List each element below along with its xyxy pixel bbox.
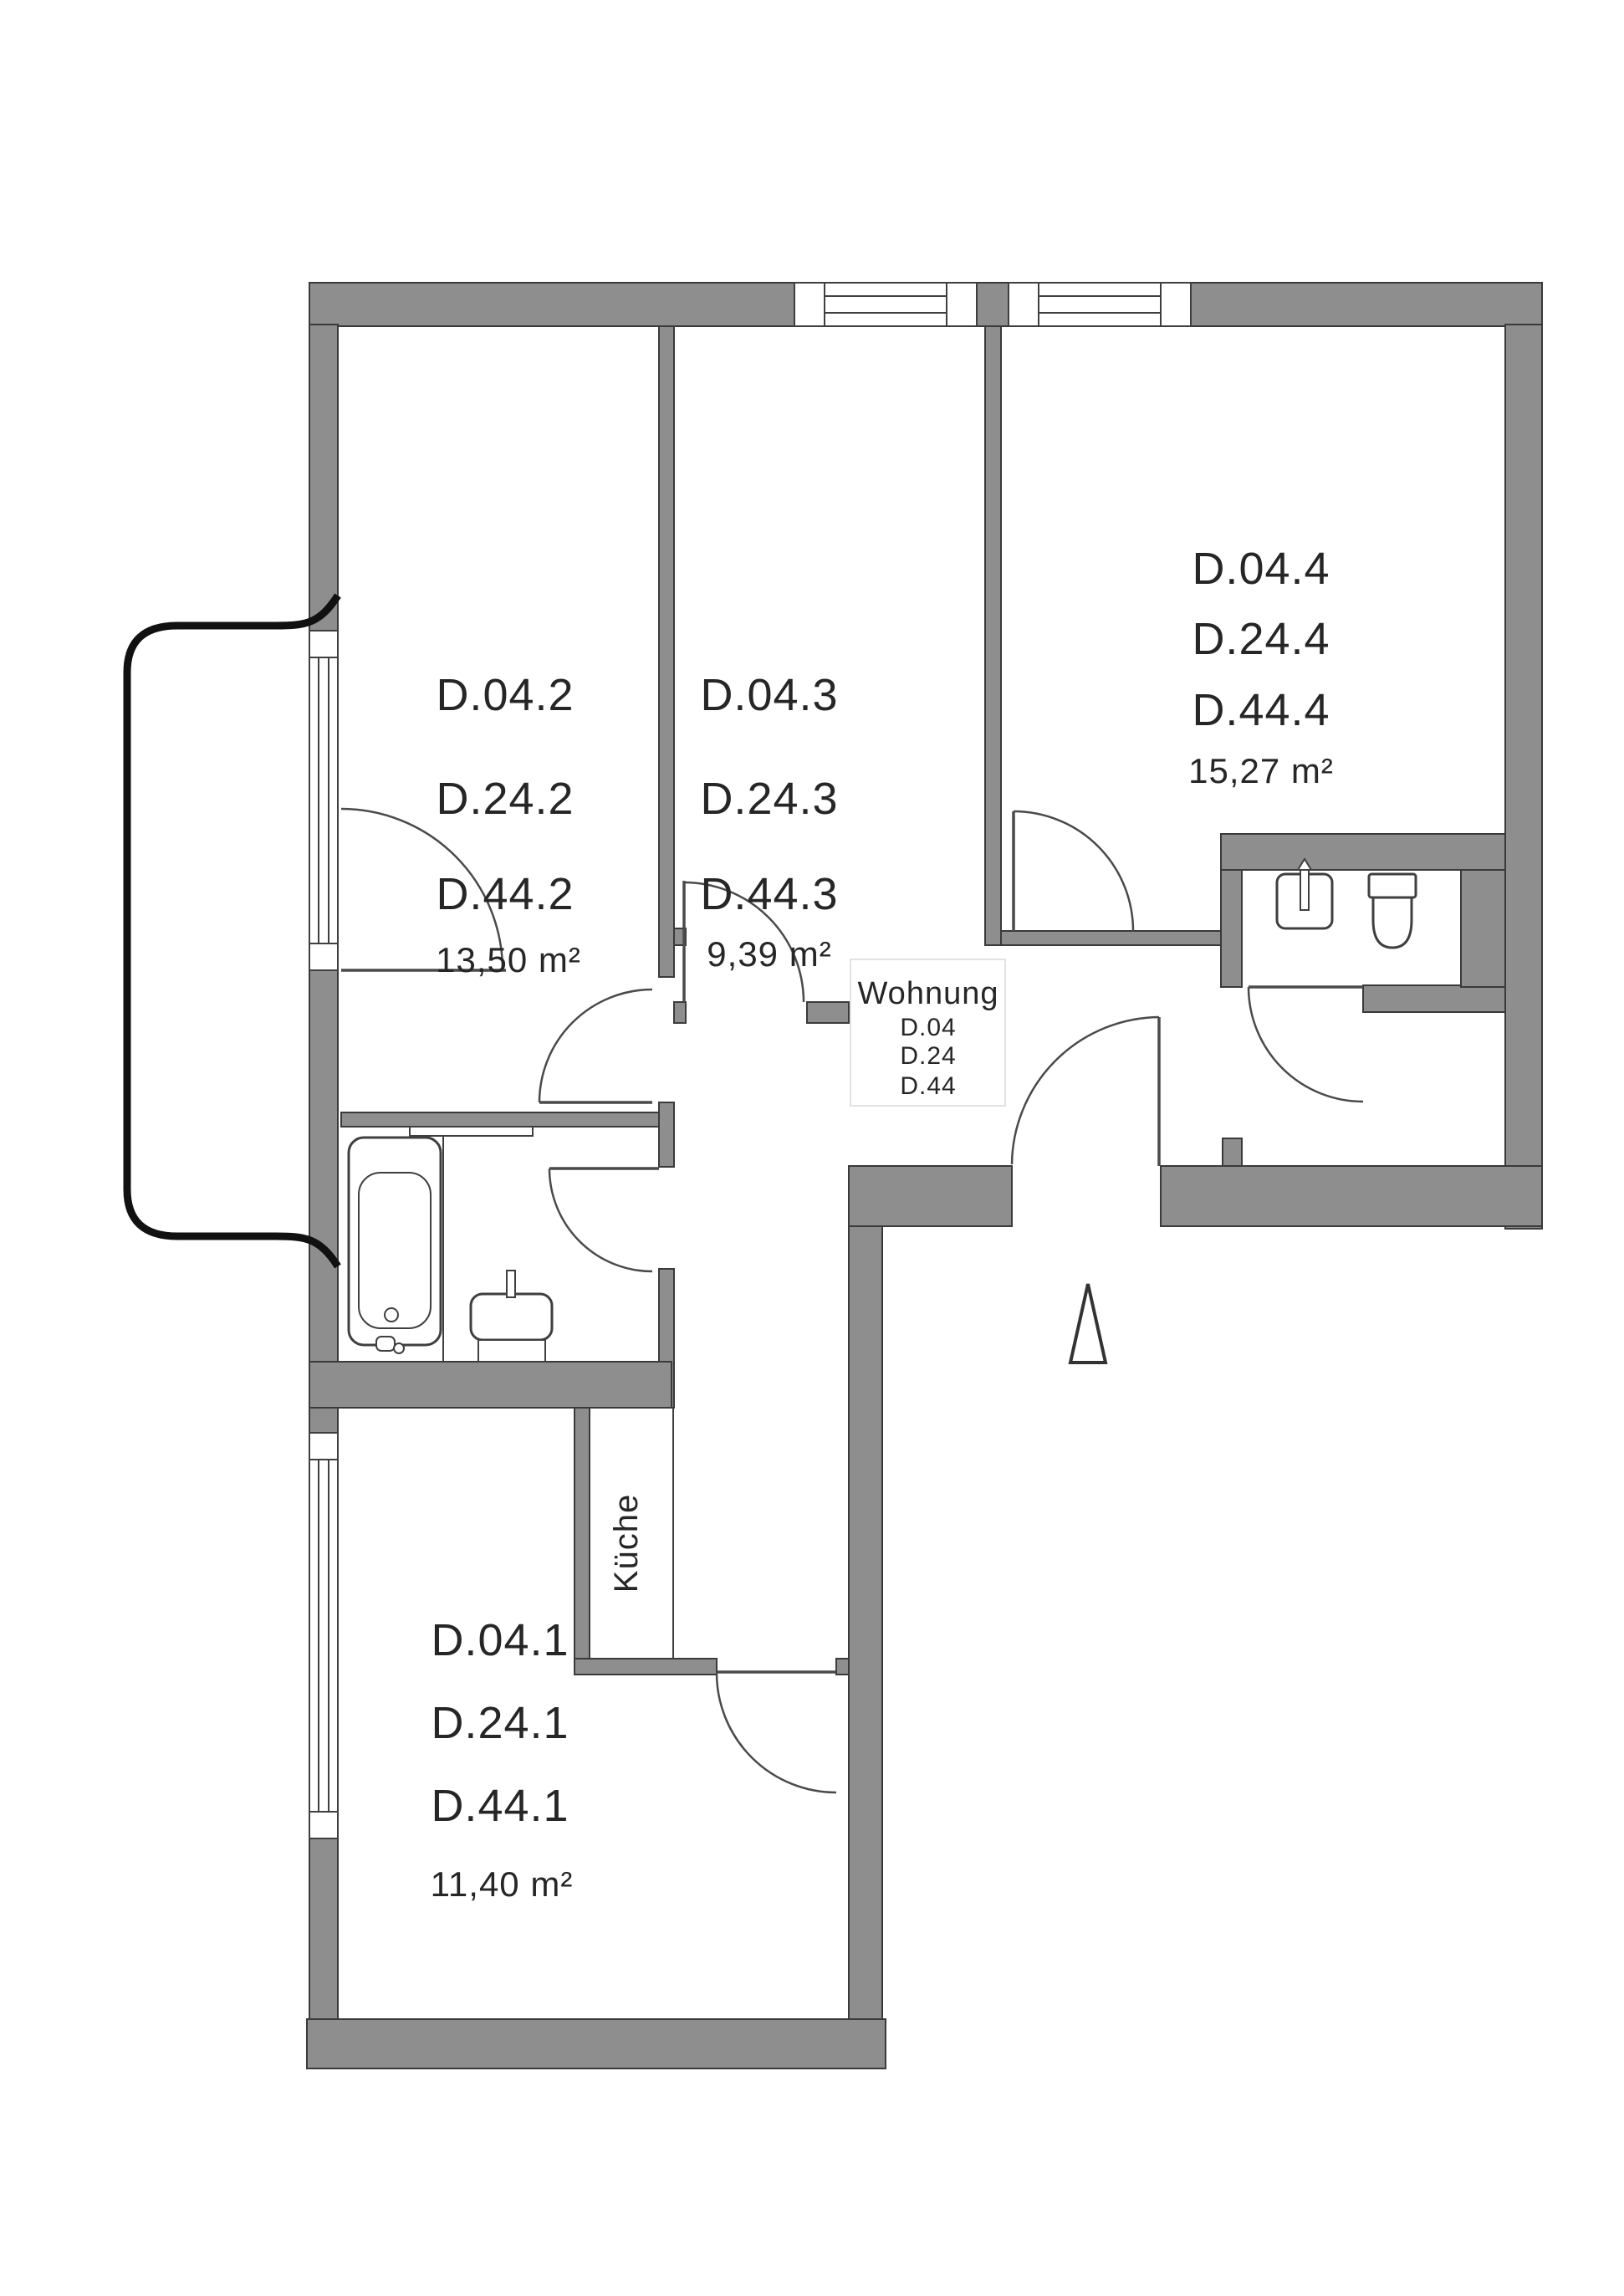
room4-label-1: D.04.4 bbox=[1192, 544, 1330, 594]
entrance-arrow-icon bbox=[1070, 1284, 1106, 1363]
wall-room1-door-stub bbox=[836, 1659, 849, 1675]
window-top-room3 bbox=[794, 283, 977, 326]
wall-entrance-right bbox=[1161, 1166, 1542, 1226]
room1-area: 11,40 m² bbox=[431, 1864, 574, 1904]
windows bbox=[309, 283, 1191, 1838]
wall-wc-east bbox=[1461, 870, 1505, 987]
window-room1 bbox=[309, 1433, 338, 1838]
room4-label-2: D.24.4 bbox=[1192, 614, 1330, 664]
bathroom-shelf bbox=[410, 1127, 533, 1136]
room3-area: 9,39 m² bbox=[707, 934, 831, 974]
wall-bathroom-bottom bbox=[309, 1362, 672, 1408]
room4-area: 15,27 m² bbox=[1188, 751, 1334, 790]
unit-box-line-1: D.04 bbox=[900, 1014, 956, 1041]
toilet-icon bbox=[1369, 874, 1416, 948]
door-room4 bbox=[1014, 811, 1133, 931]
door-entrance bbox=[1012, 1017, 1159, 1166]
door-room1 bbox=[717, 1672, 836, 1792]
wall-top-window-pier bbox=[977, 283, 1009, 326]
room1-label-1: D.04.1 bbox=[431, 1615, 569, 1665]
balcony-railing bbox=[127, 596, 338, 1266]
wall-room3-bottom-left-stub bbox=[674, 1002, 686, 1023]
wall-partition-room3-room4 bbox=[985, 326, 1001, 945]
floorplan-page: D.04.2 D.24.2 D.44.2 13,50 m² D.04.3 D.2… bbox=[0, 0, 1624, 2296]
room3-label-3: D.44.3 bbox=[700, 869, 838, 919]
wall-bathroom-top bbox=[341, 1112, 661, 1127]
wall-wc-left bbox=[1221, 870, 1242, 987]
room2-label-2: D.24.2 bbox=[436, 774, 574, 824]
wall-room3-bottom-right-stub bbox=[807, 1002, 849, 1023]
room2-label-1: D.04.2 bbox=[436, 670, 574, 720]
kitchen-label: Küche bbox=[608, 1494, 645, 1593]
unit-box-line-2: D.24 bbox=[900, 1042, 956, 1070]
wall-bottom bbox=[307, 2019, 886, 2068]
door-bathroom bbox=[549, 1168, 659, 1271]
wall-kitchen-left bbox=[575, 1408, 590, 1675]
wall-kitchen-bottom bbox=[575, 1659, 717, 1675]
wall-top-right bbox=[1191, 283, 1542, 326]
room1-label-2: D.24.1 bbox=[431, 1698, 569, 1748]
room3-label-2: D.24.3 bbox=[700, 774, 838, 824]
bathtub-icon bbox=[349, 1138, 441, 1353]
window-balcony-room2 bbox=[309, 631, 338, 970]
wall-wc-bottom bbox=[1363, 985, 1505, 1012]
wall-corridor-east bbox=[849, 1226, 882, 2019]
wall-bathroom-east-upper bbox=[659, 1102, 674, 1167]
wall-left-lower bbox=[309, 1838, 338, 2019]
wall-right bbox=[1505, 325, 1542, 1229]
window-top-room4 bbox=[1009, 283, 1191, 326]
wall-wc-top bbox=[1221, 834, 1505, 870]
room2-area: 13,50 m² bbox=[436, 940, 581, 979]
door-wc bbox=[1249, 987, 1363, 1102]
room3-label-1: D.04.3 bbox=[700, 670, 838, 720]
room4-label-3: D.44.4 bbox=[1192, 685, 1330, 735]
wall-partition-room2-room3 bbox=[659, 326, 674, 977]
door-hall-room2 bbox=[539, 989, 652, 1102]
wall-room4-bottom bbox=[1001, 931, 1221, 945]
unit-box-line-3: D.44 bbox=[900, 1072, 956, 1100]
wall-left-upper bbox=[309, 325, 338, 631]
wall-entrance-left bbox=[849, 1166, 1012, 1226]
bathroom-sink-icon bbox=[471, 1271, 552, 1362]
wall-wc-stub bbox=[1223, 1138, 1242, 1166]
unit-label-box: Wohnung D.04 D.24 D.44 bbox=[850, 959, 1005, 1106]
wall-top-left bbox=[309, 283, 794, 326]
floorplan-drawing: D.04.2 D.24.2 D.44.2 13,50 m² D.04.3 D.2… bbox=[0, 0, 1624, 2296]
room1-label-3: D.44.1 bbox=[431, 1781, 569, 1831]
room2-label-3: D.44.2 bbox=[436, 869, 574, 919]
unit-box-title: Wohnung bbox=[858, 976, 999, 1011]
